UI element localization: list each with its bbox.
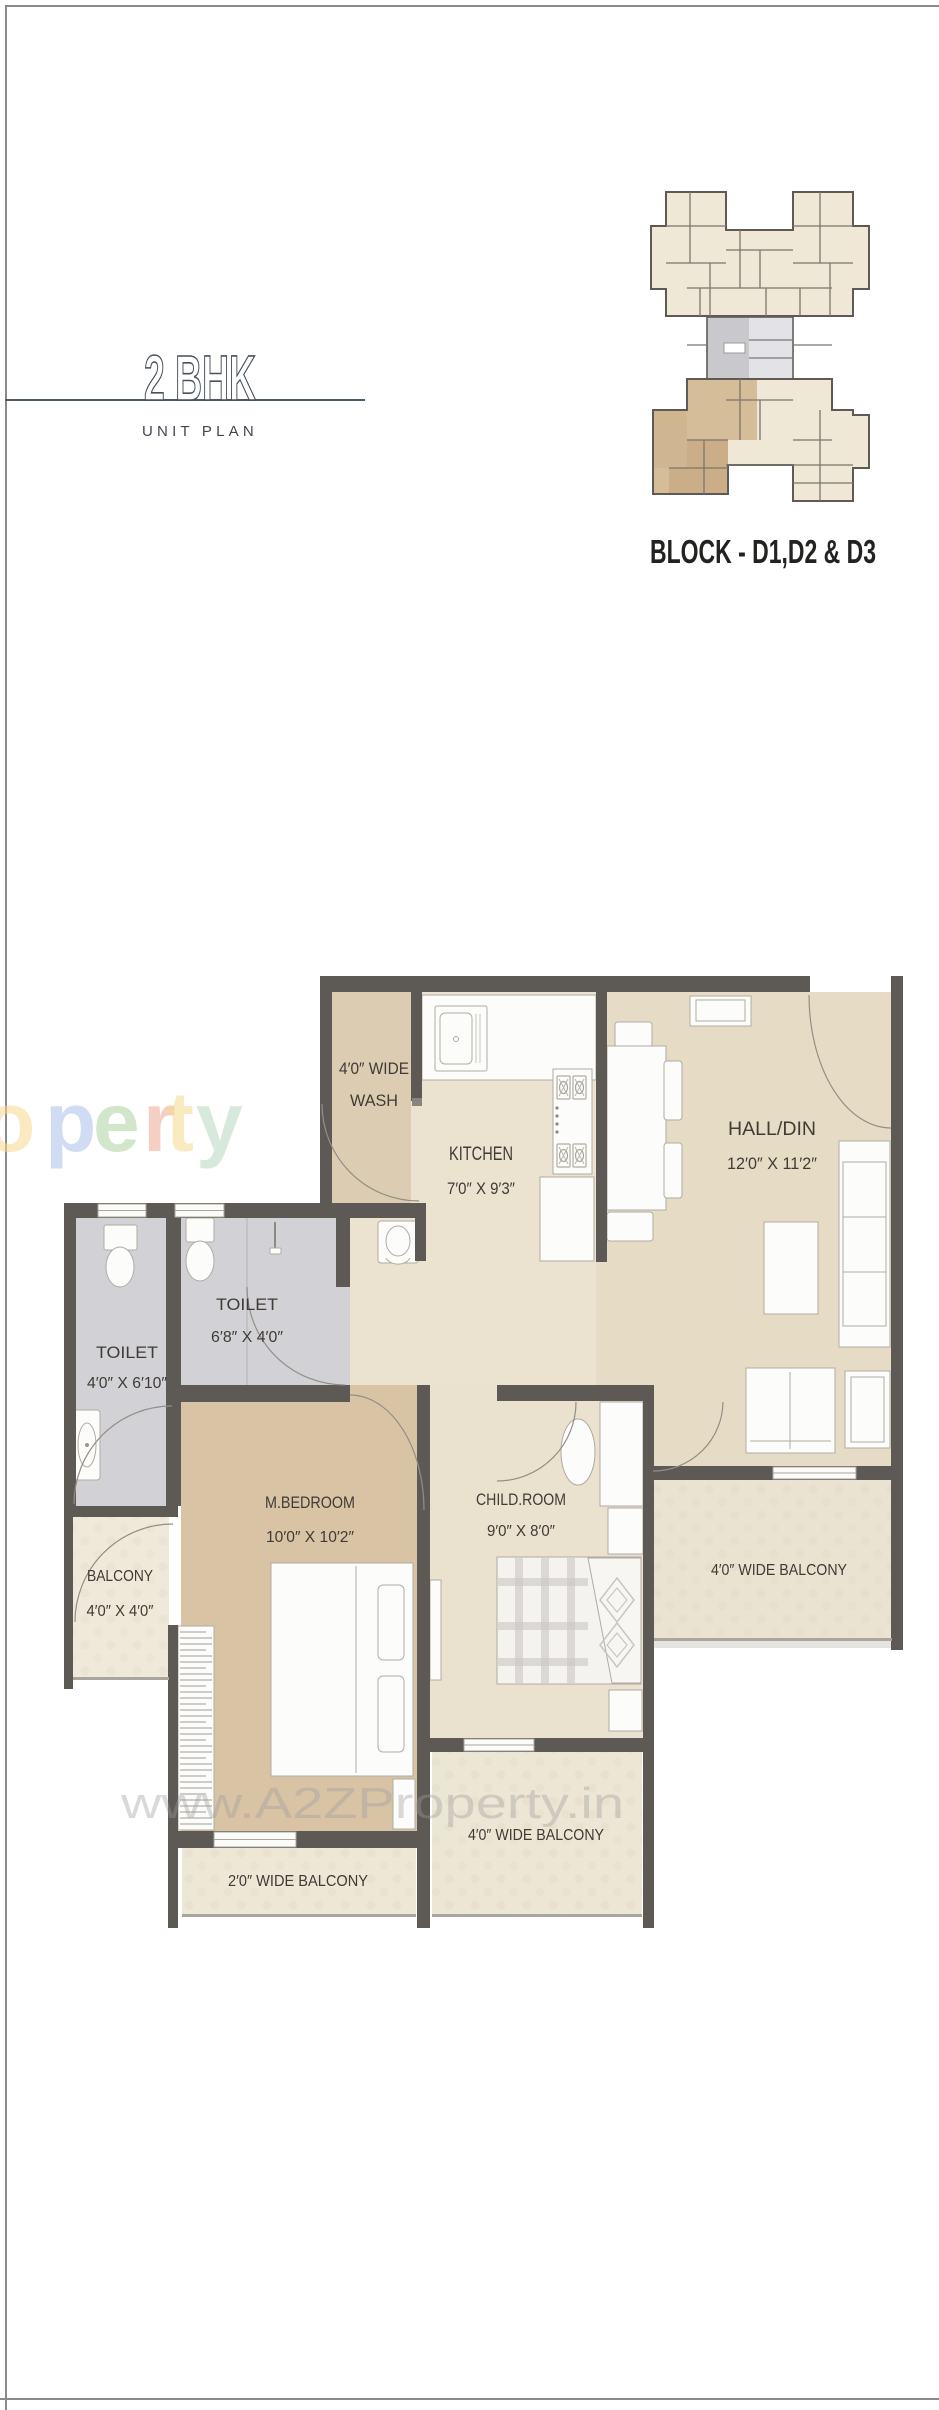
svg-text:2′0″ WIDE BALCONY: 2′0″ WIDE BALCONY <box>228 1873 368 1890</box>
svg-text:4′0″ X 6′10″: 4′0″ X 6′10″ <box>87 1375 167 1392</box>
svg-text:TOILET: TOILET <box>96 1343 158 1362</box>
svg-text:BLOCK - D1,D2 & D3: BLOCK - D1,D2 & D3 <box>650 533 876 570</box>
svg-text:9′0″ X 8′0″: 9′0″ X 8′0″ <box>487 1523 555 1540</box>
svg-text:p: p <box>45 1075 96 1169</box>
svg-text:TOILET: TOILET <box>216 1295 278 1314</box>
svg-text:WASH: WASH <box>350 1091 398 1110</box>
svg-text:BALCONY: BALCONY <box>87 1568 153 1585</box>
svg-text:www.A2ZProperty.in: www.A2ZProperty.in <box>120 1779 624 1828</box>
svg-text:12′0″ X 11′2″: 12′0″ X 11′2″ <box>727 1154 817 1173</box>
svg-text:e: e <box>93 1075 140 1169</box>
svg-text:CHILD.ROOM: CHILD.ROOM <box>476 1490 566 1509</box>
svg-text:4′0″ WIDE BALCONY: 4′0″ WIDE BALCONY <box>468 1827 604 1844</box>
svg-text:10′0″ X 10′2″: 10′0″ X 10′2″ <box>266 1529 354 1546</box>
svg-text:6′8″ X 4′0″: 6′8″ X 4′0″ <box>211 1329 283 1346</box>
svg-text:UNIT PLAN: UNIT PLAN <box>142 423 258 440</box>
svg-text:M.BEDROOM: M.BEDROOM <box>265 1493 355 1512</box>
svg-text:2 BHK: 2 BHK <box>144 342 256 414</box>
svg-text:t: t <box>166 1075 194 1169</box>
svg-text:4′0″ WIDE BALCONY: 4′0″ WIDE BALCONY <box>711 1562 847 1579</box>
svg-text:y: y <box>196 1075 243 1169</box>
svg-text:4′0″ X 4′0″: 4′0″ X 4′0″ <box>87 1603 154 1620</box>
svg-text:o: o <box>0 1075 35 1169</box>
svg-text:HALL/DIN: HALL/DIN <box>728 1119 816 1140</box>
svg-text:KITCHEN: KITCHEN <box>449 1144 513 1165</box>
svg-text:4′0″ WIDE: 4′0″ WIDE <box>339 1059 409 1078</box>
svg-text:7′0″ X 9′3″: 7′0″ X 9′3″ <box>447 1179 515 1198</box>
